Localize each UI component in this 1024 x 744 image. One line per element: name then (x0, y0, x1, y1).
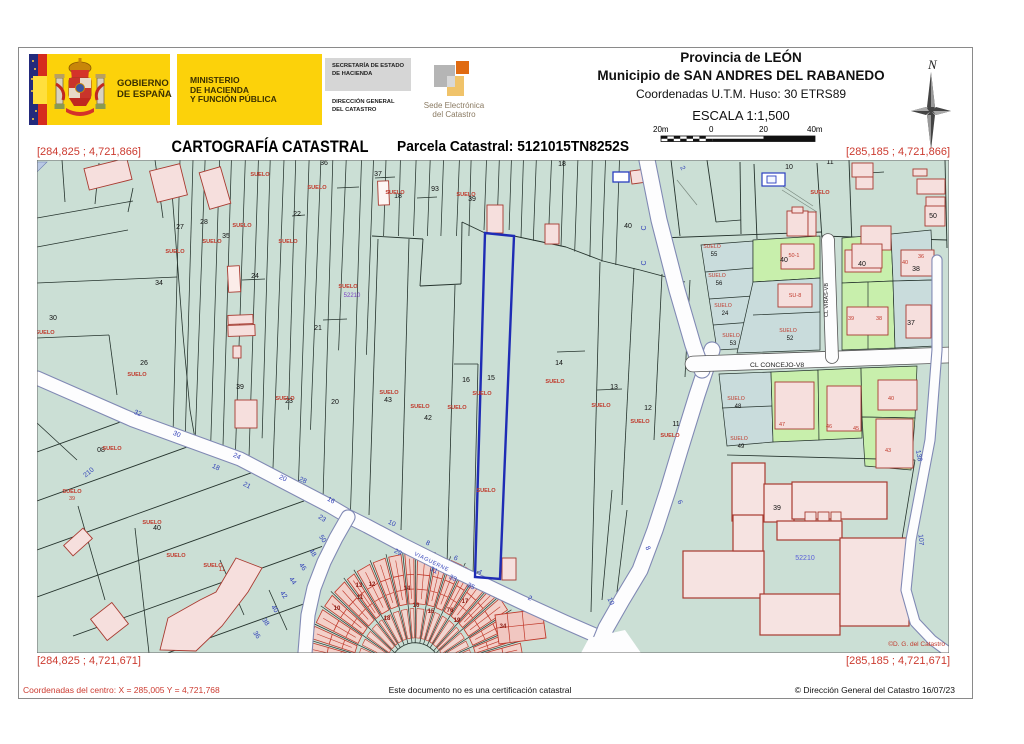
svg-text:30: 30 (49, 315, 57, 322)
svg-text:SUELO: SUELO (810, 190, 830, 196)
svg-text:20: 20 (759, 125, 768, 134)
svg-text:39: 39 (69, 496, 75, 502)
svg-text:20m: 20m (653, 125, 669, 134)
svg-text:28: 28 (200, 219, 208, 226)
svg-text:SUELO: SUELO (727, 396, 745, 402)
svg-text:37: 37 (907, 320, 915, 327)
svg-text:C: C (641, 225, 648, 230)
svg-text:SUELO: SUELO (591, 403, 611, 409)
svg-text:50-1: 50-1 (788, 253, 799, 259)
svg-text:SUELO: SUELO (166, 553, 186, 559)
svg-text:12: 12 (369, 582, 376, 588)
svg-text:SUELO: SUELO (142, 520, 162, 526)
svg-text:53: 53 (730, 341, 737, 347)
svg-text:11: 11 (357, 595, 364, 601)
svg-text:55: 55 (711, 252, 718, 258)
svg-text:SUELO: SUELO (379, 390, 399, 396)
svg-text:38: 38 (876, 316, 882, 322)
svg-text:16: 16 (413, 603, 420, 609)
svg-text:C: C (641, 260, 648, 265)
svg-text:20: 20 (331, 399, 339, 406)
svg-text:52210: 52210 (344, 293, 361, 299)
svg-text:39: 39 (773, 505, 781, 512)
svg-text:40: 40 (902, 260, 908, 266)
svg-text:SUELO: SUELO (250, 172, 270, 178)
svg-text:10: 10 (785, 164, 793, 171)
svg-text:52: 52 (787, 336, 794, 342)
svg-text:40: 40 (888, 396, 894, 402)
svg-text:SUELO: SUELO (275, 396, 295, 402)
svg-text:93: 93 (431, 186, 439, 193)
svg-text:24: 24 (251, 273, 259, 280)
svg-text:11: 11 (826, 160, 833, 166)
svg-text:SUELO: SUELO (708, 273, 726, 279)
svg-text:SUELO: SUELO (165, 249, 185, 255)
svg-text:SUELO: SUELO (779, 328, 797, 334)
svg-text:SUELO: SUELO (545, 379, 565, 385)
svg-text:SUELO: SUELO (660, 433, 680, 439)
svg-text:SUELO: SUELO (385, 190, 405, 196)
svg-text:SUELO: SUELO (703, 244, 721, 250)
svg-text:14: 14 (404, 586, 411, 592)
svg-text:19: 19 (454, 618, 461, 624)
svg-text:SUELO: SUELO (232, 223, 252, 229)
svg-text:©D. G. del Catastro: ©D. G. del Catastro (888, 640, 945, 648)
svg-text:SU-8: SU-8 (789, 293, 802, 299)
svg-text:50: 50 (929, 213, 937, 220)
svg-text:47: 47 (779, 422, 785, 428)
svg-text:18: 18 (384, 616, 391, 622)
svg-text:45: 45 (853, 426, 859, 432)
svg-text:36: 36 (918, 254, 924, 260)
svg-text:15: 15 (487, 375, 495, 382)
svg-text:48: 48 (735, 404, 742, 410)
svg-text:0: 0 (709, 125, 714, 134)
svg-text:40: 40 (153, 525, 161, 532)
svg-text:N: N (927, 57, 938, 72)
svg-text:34: 34 (155, 280, 163, 287)
svg-text:39: 39 (236, 384, 244, 391)
svg-text:15: 15 (428, 609, 435, 615)
svg-text:16: 16 (462, 377, 470, 384)
svg-text:12: 12 (644, 405, 652, 412)
svg-text:CL CONCEJO-V8: CL CONCEJO-V8 (750, 362, 804, 369)
svg-text:43: 43 (885, 448, 891, 454)
svg-text:SUELO: SUELO (630, 419, 650, 425)
svg-text:27: 27 (176, 224, 184, 231)
svg-text:21: 21 (314, 325, 322, 332)
svg-text:SUELO: SUELO (456, 192, 476, 198)
svg-text:26: 26 (140, 360, 148, 367)
svg-text:SUELO: SUELO (447, 405, 467, 411)
svg-text:22: 22 (293, 211, 301, 218)
svg-text:SUELO: SUELO (102, 446, 122, 452)
svg-text:SUELO: SUELO (127, 372, 147, 378)
svg-text:49: 49 (738, 444, 745, 450)
svg-text:SUELO: SUELO (476, 488, 496, 494)
svg-text:SUELO: SUELO (338, 284, 358, 290)
svg-text:CL VIRAS-VB: CL VIRAS-VB (824, 283, 830, 317)
svg-text:SUELO: SUELO (278, 239, 298, 245)
svg-text:40: 40 (858, 261, 866, 268)
svg-text:42: 42 (424, 415, 432, 422)
svg-text:46: 46 (826, 424, 832, 430)
svg-text:SUELO: SUELO (307, 185, 327, 191)
svg-text:37: 37 (374, 171, 382, 178)
svg-text:52210: 52210 (795, 555, 815, 562)
svg-text:SUELO: SUELO (202, 239, 222, 245)
svg-text:40m: 40m (807, 125, 823, 134)
svg-text:107: 107 (917, 534, 925, 546)
svg-text:SUELO: SUELO (730, 436, 748, 442)
svg-text:SUELO: SUELO (410, 404, 430, 410)
svg-text:SUELO: SUELO (722, 333, 740, 339)
svg-text:SUELO: SUELO (62, 489, 82, 495)
svg-text:36: 36 (320, 160, 328, 167)
svg-text:40: 40 (624, 223, 632, 230)
svg-text:17: 17 (462, 599, 469, 605)
svg-text:34: 34 (500, 624, 507, 630)
svg-text:38: 38 (912, 266, 920, 273)
svg-text:SUELO: SUELO (472, 391, 492, 397)
svg-text:SUELO: SUELO (37, 330, 55, 336)
svg-text:39: 39 (848, 316, 854, 322)
svg-text:35: 35 (222, 233, 230, 240)
svg-text:40: 40 (780, 257, 788, 264)
svg-text:SUELO: SUELO (714, 303, 732, 309)
svg-text:56: 56 (716, 281, 723, 287)
svg-text:76: 76 (447, 608, 454, 614)
svg-text:11: 11 (219, 567, 226, 573)
svg-text:10: 10 (334, 606, 341, 612)
svg-text:13: 13 (610, 384, 618, 391)
svg-text:18: 18 (558, 161, 566, 168)
svg-text:11: 11 (672, 421, 679, 428)
svg-text:13: 13 (356, 583, 363, 589)
svg-text:24: 24 (722, 311, 729, 317)
svg-text:43: 43 (384, 397, 392, 404)
svg-text:14: 14 (555, 360, 563, 367)
